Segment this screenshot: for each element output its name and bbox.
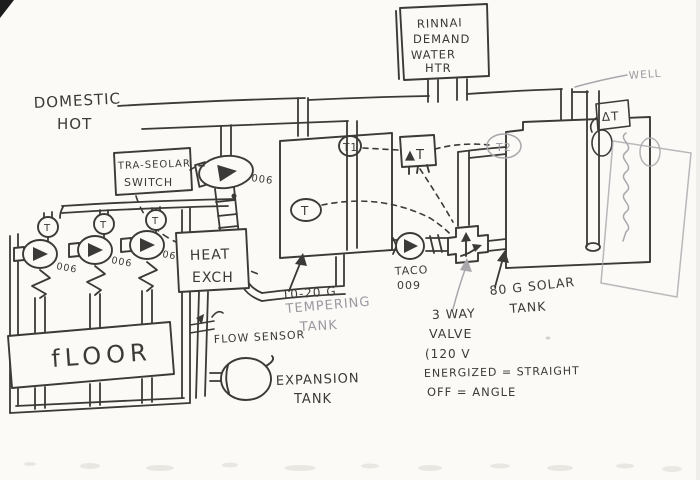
expansion-label-2: TANK (293, 392, 332, 407)
tank-sensor-label: T (300, 204, 309, 218)
delta-t-mid-label: ▲T (405, 148, 425, 163)
domestic-hot-label-2: HOT (57, 115, 92, 133)
expansion-label-1: EXPANSION (276, 371, 360, 389)
tempering-label-2: TANK (298, 318, 338, 335)
heater-label-3: WATER (411, 47, 456, 62)
scanned-sketch-page: RINNAI DEMAND WATER HTR DOMESTIC HOT TRA… (0, 0, 700, 480)
heater-label-2: DEMAND (413, 32, 470, 46)
pencil-smudge (546, 337, 551, 340)
t2-label: T2 (495, 141, 512, 154)
heat-exch-label-1: HEAT (190, 247, 231, 264)
valve-label-5: OFF = ANGLE (427, 385, 516, 399)
heater-label-1: RINNAI (417, 15, 463, 31)
taco-label-2: 009 (397, 279, 421, 292)
valve-label-1: 3 WAY (432, 305, 476, 322)
loop-sensor-label-1: T (43, 223, 51, 234)
valve-label-3: (120 V (425, 347, 471, 361)
tempering-tank (280, 133, 392, 258)
scan-edge-shade (696, 0, 700, 480)
valve-label-4: ENERGIZED = STRAIGHT (424, 364, 580, 380)
loop-sensor-label-3: T (151, 216, 159, 227)
solar-switch-label-2: SWITCH (124, 176, 173, 189)
valve-label-2: VALVE (429, 326, 472, 341)
heat-exch-label-2: EXCH (192, 270, 234, 286)
t1-label: T1 (342, 142, 358, 154)
loop-sensor-label-2: T (99, 220, 107, 231)
schematic-canvas: RINNAI DEMAND WATER HTR DOMESTIC HOT TRA… (0, 0, 700, 480)
delta-t-top-label: ΔT (601, 109, 619, 124)
taco-label-1: TACO (393, 263, 428, 278)
solar-tank-label-2: TANK (508, 298, 547, 316)
solar-tank (506, 117, 650, 268)
taco-009-pump-symbol (396, 233, 424, 259)
heater-label-4: HTR (425, 61, 452, 75)
well-label: WELL (628, 68, 661, 82)
